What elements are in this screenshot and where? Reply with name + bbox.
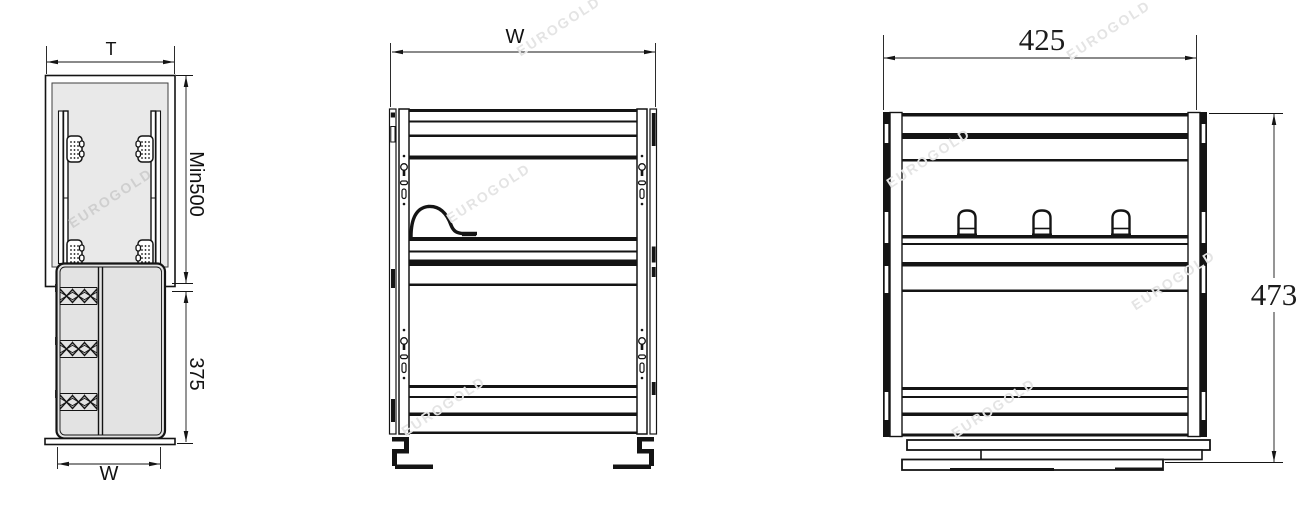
bottle-clip [957,211,977,238]
pullout-basket [55,264,165,439]
shelf [409,237,637,241]
dim-label-min500: Min500 [186,149,206,219]
foot-bracket [613,437,654,469]
dim-label-W-side: W [89,464,129,484]
technical-drawing-page: T Min500 375 W W 425 473 EUROGOLD EUROGO… [0,0,1313,507]
dim-label-W-front: W [495,27,535,47]
frame-strip-right [650,109,657,434]
handle [411,206,477,237]
slide-rail-right [151,111,161,264]
dim-label-425: 425 [992,24,1092,55]
frame-strip-left [883,112,890,437]
side-view [45,46,193,469]
mounting-plate [67,136,84,162]
dim-label-T: T [91,40,131,58]
frame-strip-left [390,109,397,434]
frame-side-post [637,109,647,434]
base-plate [45,439,175,445]
mounting-plate [136,136,153,162]
mounting-plate [136,240,153,266]
technical-drawing [0,0,1313,507]
dim-label-375: 375 [186,349,206,399]
mounting-plate [67,240,84,266]
frame-side-post [399,109,409,434]
foot-bracket [392,437,433,469]
dimension-W [391,43,656,107]
slide-rail-left [59,111,69,264]
frame-side-post [890,113,902,437]
front-view [390,43,657,469]
frame-strip-right [1200,112,1207,437]
bottle-clip [1032,211,1052,238]
frame-rails [409,109,637,434]
bottle-clip [1111,211,1131,238]
dim-label-473: 473 [1224,279,1313,310]
frame-rails [902,113,1188,437]
slide-base [902,440,1210,471]
front-view-dimensioned [883,35,1283,471]
frame-side-post [1188,113,1200,437]
